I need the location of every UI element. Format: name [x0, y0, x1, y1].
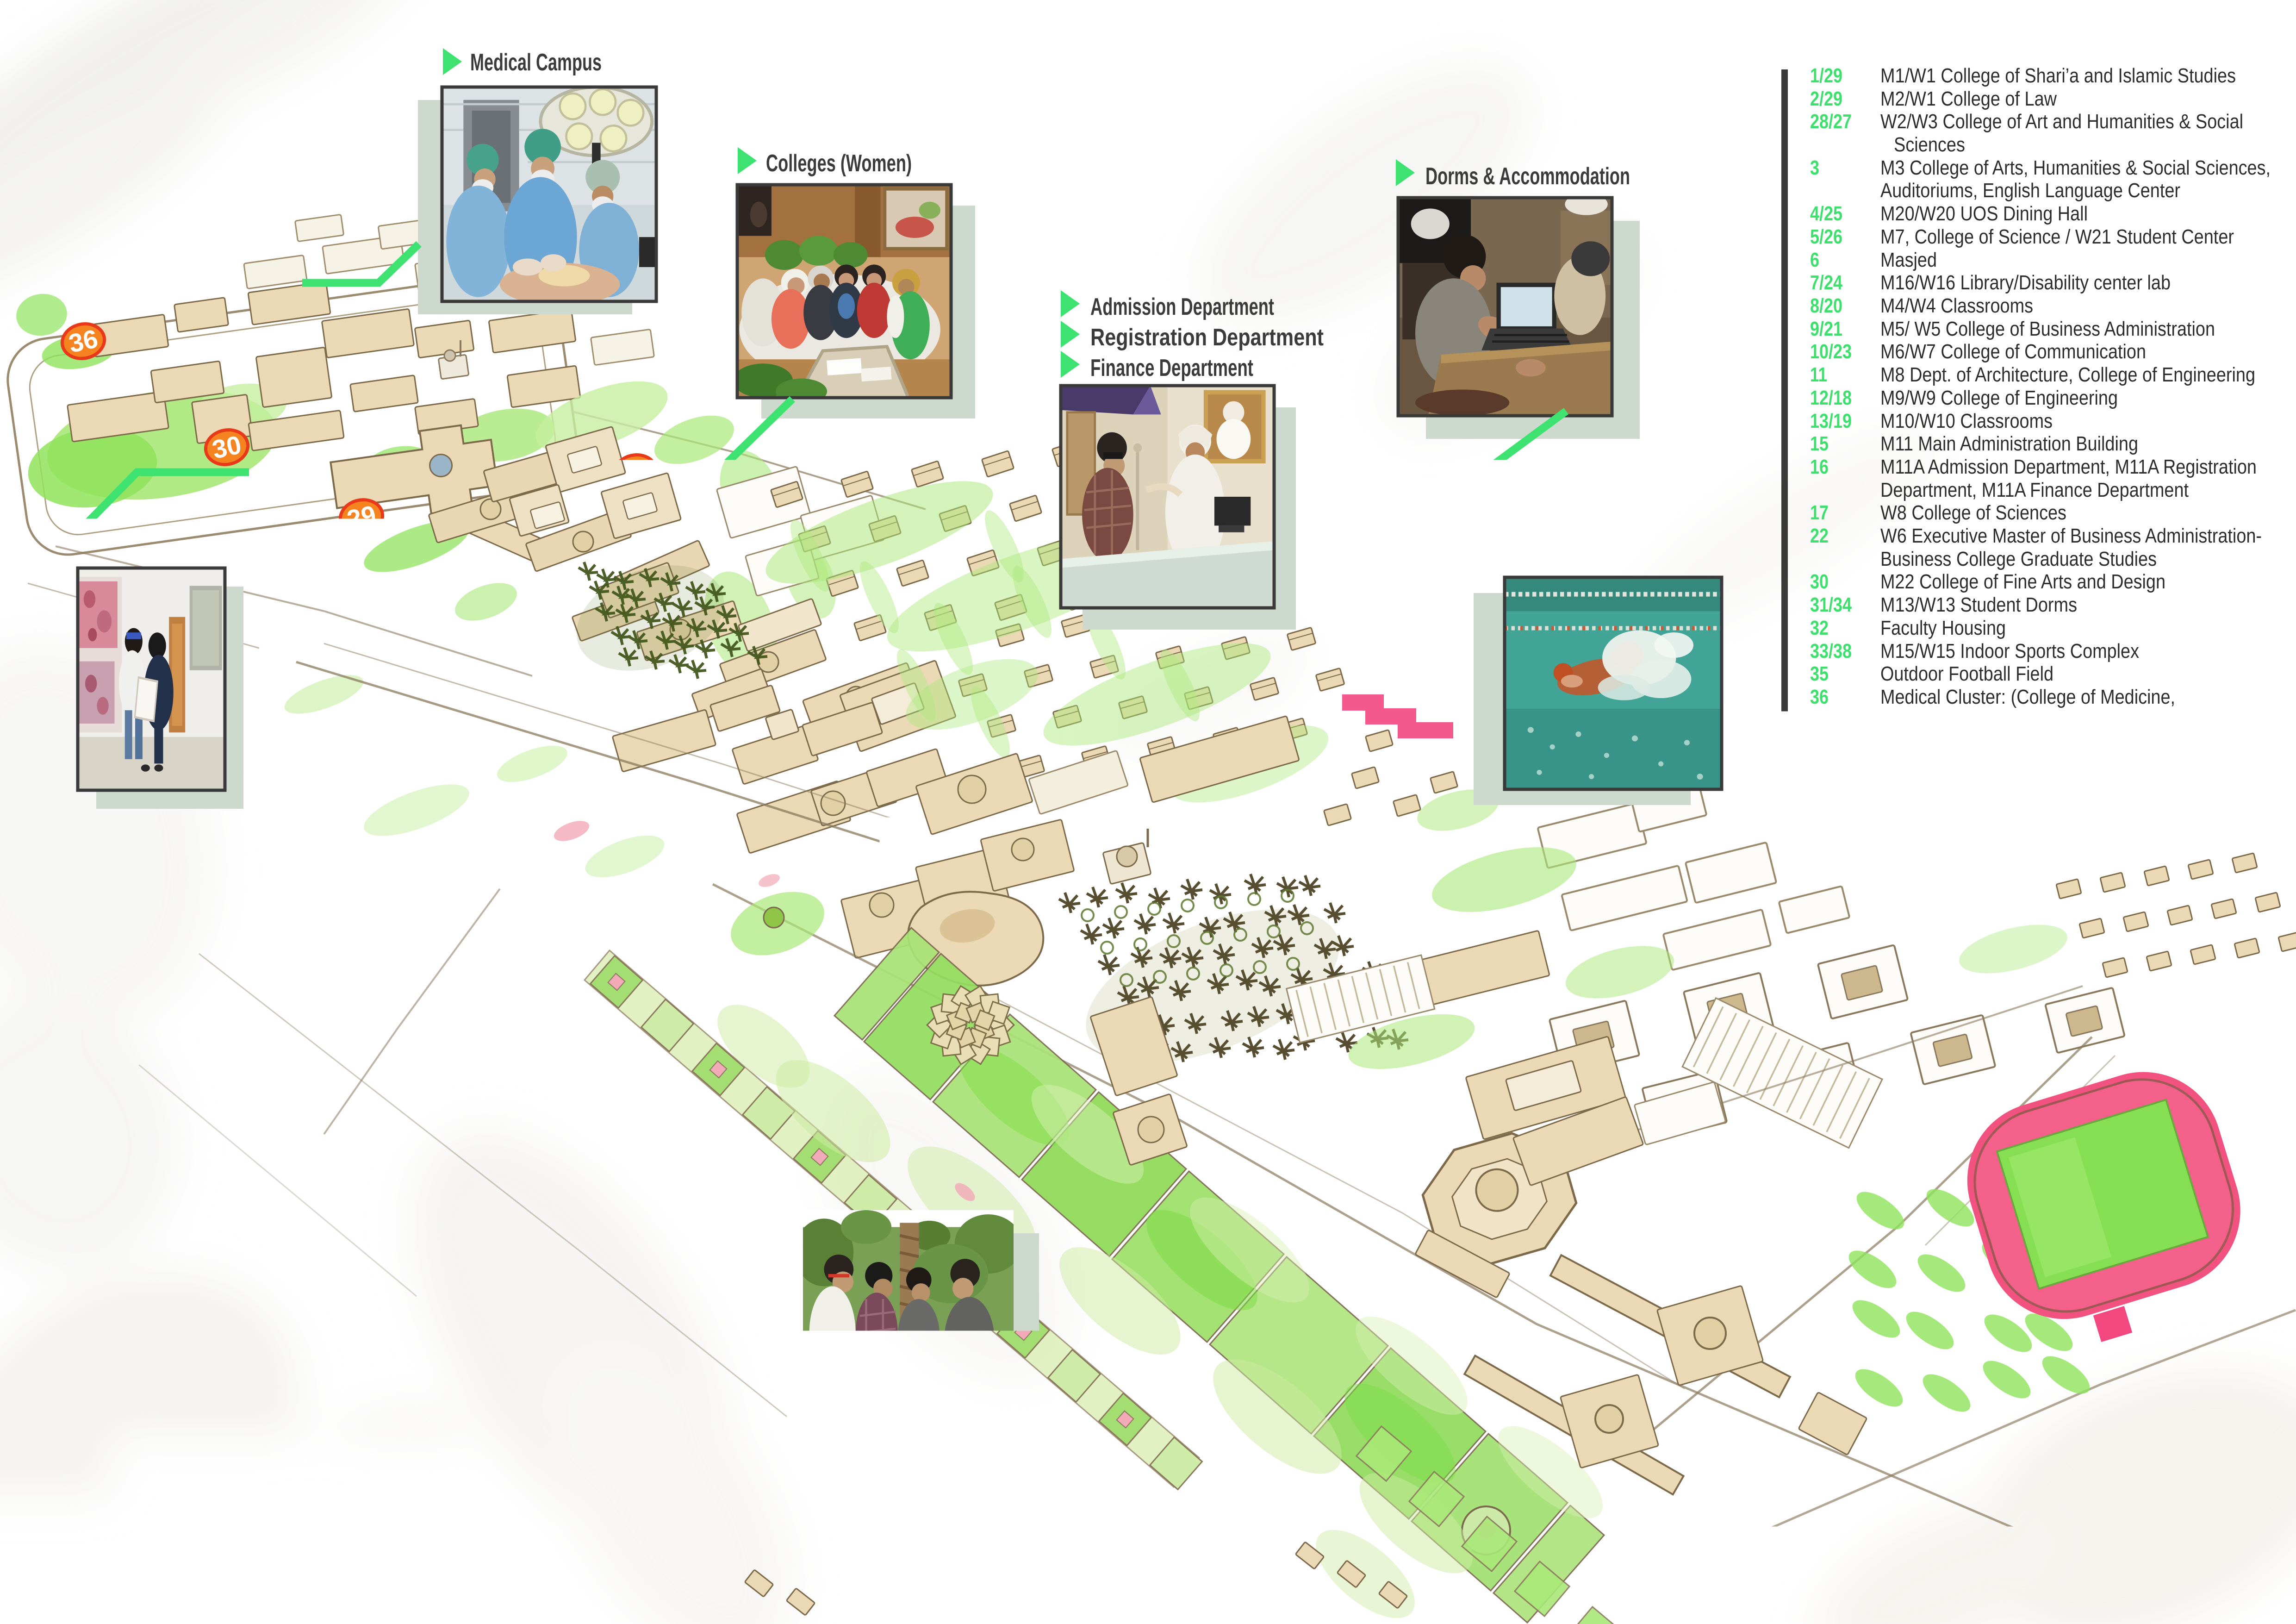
svg-text:M22 College of Fine Arts and D: M22 College of Fine Arts and Design	[1880, 570, 2165, 593]
svg-text:27: 27	[439, 561, 473, 595]
svg-text:32: 32	[1810, 617, 1829, 639]
svg-text:M2/W1 College of Law: M2/W1 College of Law	[1880, 87, 2057, 110]
svg-text:31: 31	[618, 455, 652, 489]
svg-text:36: 36	[66, 324, 100, 358]
svg-text:17: 17	[631, 725, 665, 759]
svg-text:21: 21	[602, 652, 636, 687]
svg-text:40-41: 40-41	[1810, 824, 1853, 846]
svg-text:M9/W9 College of Engineering: M9/W9 College of Engineering	[1880, 387, 2118, 409]
svg-text:25: 25	[543, 568, 577, 603]
svg-text:M15/W15 Indoor Sports Complex: M15/W15 Indoor Sports Complex	[1880, 640, 2139, 662]
svg-text:37: 37	[862, 697, 896, 731]
svg-text:24: 24	[516, 628, 551, 663]
svg-text:M11 Main Administration Buildi: M11 Main Administration Building	[1880, 432, 2138, 455]
svg-text:28/27: 28/27	[1810, 110, 1852, 133]
svg-text:38: 38	[1810, 778, 1829, 800]
svg-text:15: 15	[739, 744, 773, 779]
svg-text:2/29: 2/29	[1810, 87, 1842, 110]
svg-text:42: 42	[1340, 981, 1374, 1016]
svg-text:37: 37	[1810, 755, 1829, 777]
svg-text:M20/W20 UOS Dining Hall: M20/W20 UOS Dining Hall	[1880, 202, 2088, 225]
svg-text:44: 44	[718, 583, 753, 618]
svg-text:15: 15	[1810, 432, 1829, 455]
svg-text:11: 11	[1810, 363, 1827, 386]
svg-text:4/25: 4/25	[1810, 202, 1842, 225]
svg-text:M10/W10 Classrooms: M10/W10 Classrooms	[1880, 410, 2053, 432]
svg-text:40: 40	[895, 1043, 929, 1077]
svg-text:6: 6	[1810, 249, 1819, 271]
svg-text:Dentistry, Pharmacy, Health Sc: Dentistry, Pharmacy, Health Sciences, Me…	[1880, 709, 2242, 731]
svg-text:University City, Sharjah: University City, Sharjah	[115, 1482, 389, 1518]
svg-text:10: 10	[1003, 843, 1037, 877]
svg-text:W2/W3 College of Art and Human: W2/W3 College of Art and Humanities & So…	[1880, 110, 2243, 133]
svg-text:M5/ W5 College of Business Adm: M5/ W5 College of Business Administratio…	[1880, 318, 2215, 340]
svg-text:26: 26	[610, 541, 645, 575]
svg-text:33: 33	[1199, 750, 1233, 785]
svg-text:16: 16	[1810, 456, 1829, 478]
svg-text:36: 36	[1810, 686, 1829, 708]
svg-text:8/20: 8/20	[1810, 294, 1842, 317]
svg-text:33/38: 33/38	[1810, 640, 1852, 662]
svg-text:3: 3	[1810, 156, 1819, 179]
svg-text:UNIVERSITY OF SHARJAH: UNIVERSITY OF SHARJAH	[95, 1355, 340, 1382]
svg-text:13/19: 13/19	[1810, 410, 1852, 432]
svg-text:Forum Building: Forum Building	[1880, 824, 1998, 846]
svg-text:Hospital and Dentistry Hospita: Hospital and Dentistry Hospital)	[1880, 731, 2126, 754]
svg-text:M3 College of Arts, Humanities: M3 College of Arts, Humanities & Social …	[1880, 156, 2271, 179]
svg-text:22: 22	[1810, 525, 1829, 547]
svg-text:28: 28	[380, 533, 414, 568]
svg-text:M11A Admission Department, M11: M11A Admission Department, M11A Registra…	[1880, 456, 2257, 478]
svg-text:38: 38	[467, 464, 501, 499]
svg-text:M1A Research Building: M1A Research Building	[1880, 800, 2062, 823]
svg-text:M6/W7 College of Communication: M6/W7 College of Communication	[1880, 340, 2146, 363]
svg-text:Fine Arts Campus: Fine Arts Campus	[114, 533, 250, 560]
svg-text:W6 Executive Master of Busines: W6 Executive Master of Business Administ…	[1880, 525, 2262, 547]
svg-text:W8 College of Sciences: W8 College of Sciences	[1880, 501, 2066, 524]
svg-text:M8 Dept. of Architecture, Coll: M8 Dept. of Architecture, College of Eng…	[1880, 363, 2255, 386]
svg-text:M12/ W12 Central Laboratories: M12/ W12 Central Laboratories	[1880, 755, 2124, 777]
svg-text:19: 19	[736, 695, 770, 730]
svg-text:Medical Cluster: (College of M: Medical Cluster: (College of Medicine,	[1880, 686, 2175, 708]
svg-text:Main Campus: Main Campus	[115, 1433, 322, 1477]
svg-text:38: 38	[1223, 1199, 1257, 1233]
svg-text:35: 35	[1810, 662, 1829, 685]
svg-text:Medical Campus: Medical Campus	[470, 49, 602, 76]
svg-text:Sports Complex: Sports Complex	[1535, 541, 1660, 568]
svg-text:Colleges (Men): Colleges (Men)	[836, 1181, 965, 1208]
svg-text:M7, College of Science / W21 S: M7, College of Science / W21 Student Cen…	[1880, 225, 2234, 248]
svg-text:17: 17	[1810, 501, 1829, 524]
svg-text:42-43-44: 42-43-44	[1810, 847, 1877, 869]
svg-text:31/34: 31/34	[1810, 593, 1852, 616]
svg-text:39: 39	[1810, 800, 1829, 823]
svg-text:32: 32	[1005, 662, 1039, 696]
svg-text:Colleges (Women): Colleges (Women)	[766, 150, 912, 177]
svg-text:Masjed: Masjed	[1880, 249, 1937, 271]
svg-text:23: 23	[716, 631, 750, 665]
svg-text:30: 30	[1810, 570, 1829, 593]
svg-text:M3A College of Graduate Studie: M3A College of Graduate Studies	[1880, 778, 2140, 800]
svg-text:M4/W4 Classrooms: M4/W4 Classrooms	[1880, 294, 2033, 317]
svg-text:Business College Graduate Stud: Business College Graduate Studies	[1880, 548, 2157, 570]
svg-text:Dorms & Accommodation: Dorms & Accommodation	[1425, 163, 1630, 190]
svg-text:12/18: 12/18	[1810, 387, 1852, 409]
svg-text:35: 35	[1927, 1219, 1961, 1254]
svg-text:43: 43	[1063, 776, 1097, 811]
svg-text:12: 12	[820, 793, 854, 827]
svg-text:16: 16	[807, 717, 841, 751]
svg-text:M16/W16 Library/Disability cen: M16/W16 Library/Disability center lab	[1880, 271, 2171, 294]
svg-text:41: 41	[380, 635, 414, 670]
svg-text:Admission Department: Admission Department	[1090, 294, 1274, 320]
svg-text:Registration Department: Registration Department	[1090, 324, 1324, 351]
svg-text:5/26: 5/26	[1810, 225, 1842, 248]
svg-text:M13/W13 Student Dorms: M13/W13 Student Dorms	[1880, 593, 2077, 616]
svg-text:Finance Department: Finance Department	[1090, 355, 1253, 381]
svg-text:Department, M11A Finance Depar: Department, M11A Finance Department	[1880, 479, 2189, 501]
svg-text:Faculty Housing: Faculty Housing	[1880, 617, 2006, 639]
svg-text:7/24: 7/24	[1810, 271, 1842, 294]
svg-text:30: 30	[210, 430, 244, 464]
svg-text:9/21: 9/21	[1810, 318, 1842, 340]
svg-text:10/23: 10/23	[1810, 340, 1852, 363]
svg-text:M1/W1 College of Shari’a and I: M1/W1 College of Shari’a and Islamic Stu…	[1880, 64, 2236, 87]
svg-text:39: 39	[1630, 1497, 1665, 1531]
svg-text:1/29: 1/29	[1810, 64, 1842, 87]
svg-text:34: 34	[1471, 961, 1506, 995]
svg-text:22: 22	[656, 635, 691, 670]
svg-text:Outdoor Football Field: Outdoor Football Field	[1880, 662, 2053, 685]
svg-text:Sciences: Sciences	[1894, 133, 1965, 156]
svg-text:13: 13	[876, 768, 910, 802]
svg-text:Football Field: Football Field	[1870, 1305, 1980, 1331]
svg-text:29: 29	[344, 500, 379, 534]
svg-text:Car Parkings: Car Parkings	[1880, 847, 1982, 869]
svg-text:20: 20	[541, 669, 575, 704]
svg-text:Auditoriums, English Language: Auditoriums, English Language Center	[1880, 179, 2180, 202]
